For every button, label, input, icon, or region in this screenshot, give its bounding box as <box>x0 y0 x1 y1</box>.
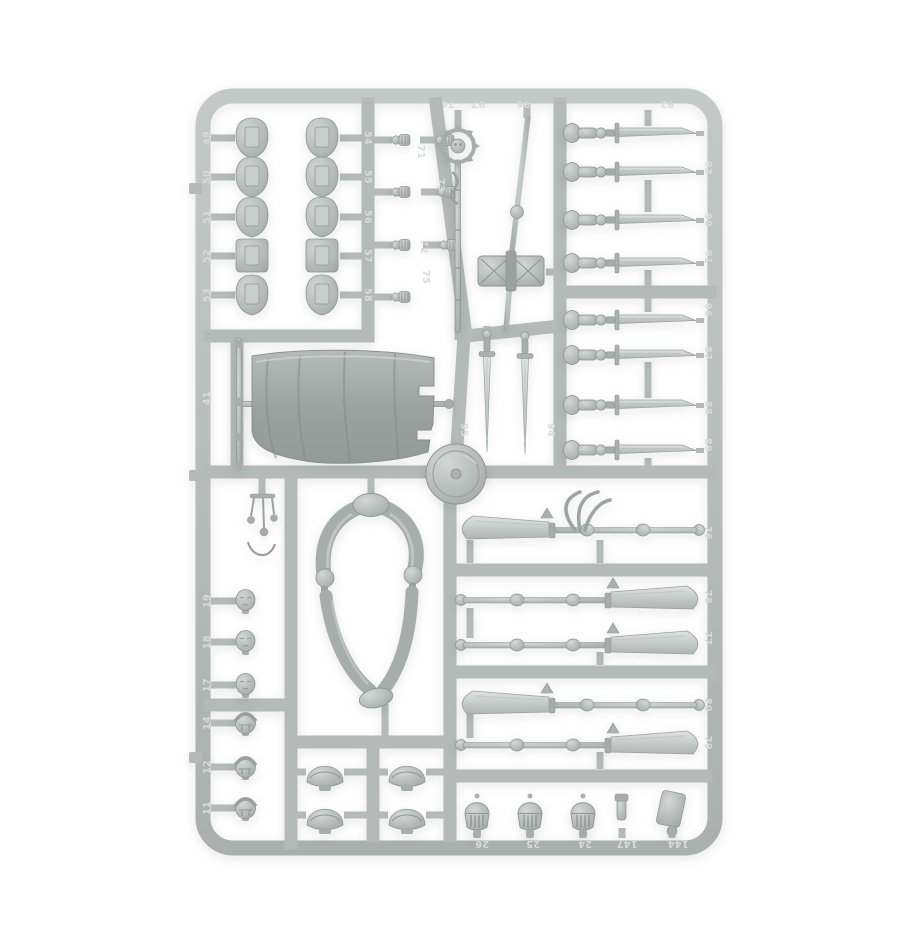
banner-part <box>235 338 454 470</box>
part-number-label: 41 <box>202 391 213 405</box>
pauldron-part <box>307 766 343 791</box>
part-number-label: 73 <box>435 178 446 192</box>
part-number-label: 58 <box>362 288 373 302</box>
part-number-label: 56 <box>362 210 373 224</box>
shoulder-pad-part <box>236 157 268 197</box>
hand-part <box>392 292 410 303</box>
hand-part <box>392 135 410 146</box>
part-number-label: 53 <box>202 288 213 302</box>
bare-head-part <box>236 590 255 615</box>
sword-arm-part <box>564 310 705 330</box>
part-number-label: 91 <box>702 250 713 264</box>
sword-arm-part <box>564 210 705 230</box>
part-number-label: 94 <box>545 423 556 437</box>
glaive-part <box>462 508 704 539</box>
glaive-part <box>456 578 698 609</box>
part-number-label: 55 <box>362 170 373 184</box>
sword-arm-part <box>564 253 705 273</box>
hanging-sword-group <box>479 330 533 454</box>
warhammer-part <box>478 116 544 332</box>
legs-assembly-part <box>316 494 422 711</box>
great-helm-part <box>518 794 542 838</box>
part-number-label: 11 <box>202 801 213 815</box>
pauldron-part <box>389 809 425 834</box>
hand-part <box>392 240 410 251</box>
sword-arm-part <box>564 395 705 415</box>
part-number-label: 95 <box>458 423 469 437</box>
part-number-label: 24 <box>578 838 592 849</box>
shoulder-pad-part <box>236 118 268 158</box>
part-number-label: 14 <box>202 716 213 730</box>
part-number-label: 12 <box>202 760 213 774</box>
sword-arm-part <box>564 162 705 182</box>
sprue-illustration: 74 97 96 92 93 90 91 96 87 88 89 76 78 7… <box>0 0 918 948</box>
part-number-label: 19 <box>202 594 213 608</box>
glaive-group <box>456 492 705 754</box>
part-number-label: 80 <box>702 698 713 712</box>
shoulder-pad-part <box>236 197 268 237</box>
part-number-label: 76 <box>702 526 713 540</box>
bare-head-part <box>236 631 255 656</box>
part-number-label: 93 <box>702 161 713 175</box>
part-number-label: 87 <box>702 346 713 360</box>
part-number-label: 92 <box>660 98 674 109</box>
pouch-part <box>656 790 687 836</box>
part-number-label: 74 <box>441 98 455 109</box>
great-helm-part <box>571 794 595 838</box>
hand-part <box>392 187 410 198</box>
part-number-label: 51 <box>202 210 213 224</box>
helmeted-head-part <box>235 713 256 737</box>
shoulder-pad-group <box>236 118 338 315</box>
shoulder-pad-part <box>306 275 338 315</box>
bottom-row-group <box>465 790 686 837</box>
part-number-label: 96 <box>702 303 713 317</box>
pauldron-part <box>389 766 425 791</box>
sprue-clip-stub <box>189 470 202 481</box>
part-number-label: 90 <box>702 213 713 227</box>
helmeted-head-part <box>235 757 256 781</box>
round-shield-part <box>426 444 486 504</box>
part-number-label: 25 <box>526 838 540 849</box>
glaive-part <box>462 683 704 714</box>
sword-arm-part <box>564 345 705 365</box>
holster-part <box>615 794 628 820</box>
sprue-clip-stub <box>189 183 202 194</box>
part-number-label: 78 <box>702 590 713 604</box>
part-number-label: 52 <box>202 249 213 263</box>
sprue-photo: 74 97 96 92 93 90 91 96 87 88 89 76 78 7… <box>0 0 918 948</box>
part-number-label: 49 <box>202 131 213 145</box>
part-number-label: 147 <box>616 838 637 849</box>
part-number-label: 75 <box>420 270 431 284</box>
part-number-label: 71 <box>415 145 426 159</box>
part-number-label: 89 <box>702 438 713 452</box>
sword-arm-part <box>564 440 705 460</box>
part-number-label: 77 <box>702 631 713 645</box>
part-number-label: 144 <box>667 838 688 849</box>
part-number-label: 88 <box>702 401 713 415</box>
plume-detail <box>566 492 610 530</box>
square-pad-part <box>236 239 268 272</box>
shoulder-pad-part <box>306 118 338 158</box>
bare-head-part <box>236 674 255 699</box>
glaive-part <box>456 723 698 754</box>
trophy-chains-part <box>247 494 277 555</box>
part-number-label: 96 <box>516 98 530 109</box>
hanging-sword-part <box>517 332 533 454</box>
part-number-label: 97 <box>471 98 485 109</box>
glaive-part <box>456 623 698 654</box>
hanging-sword-part <box>479 330 495 452</box>
shoulder-pad-part <box>236 275 268 315</box>
part-number-label: 50 <box>202 170 213 184</box>
skull-staff-part <box>436 124 480 332</box>
part-number-label: 57 <box>362 249 373 263</box>
shoulder-pad-part <box>306 157 338 197</box>
great-helm-part <box>465 794 489 838</box>
part-number-label: 72 <box>418 240 429 254</box>
helmeted-head-part <box>235 798 256 822</box>
sword-arm-part <box>564 123 705 143</box>
part-number-label: 54 <box>362 131 373 145</box>
square-pad-part <box>306 239 338 272</box>
part-number-label: 18 <box>202 635 213 649</box>
pauldron-part <box>307 809 343 834</box>
sprue-clip-stub <box>189 752 202 763</box>
part-number-label: 26 <box>475 838 489 849</box>
part-number-label: 79 <box>702 736 713 750</box>
pauldron-group <box>307 766 425 834</box>
shoulder-pad-part <box>306 197 338 237</box>
part-number-label: 17 <box>202 678 213 692</box>
